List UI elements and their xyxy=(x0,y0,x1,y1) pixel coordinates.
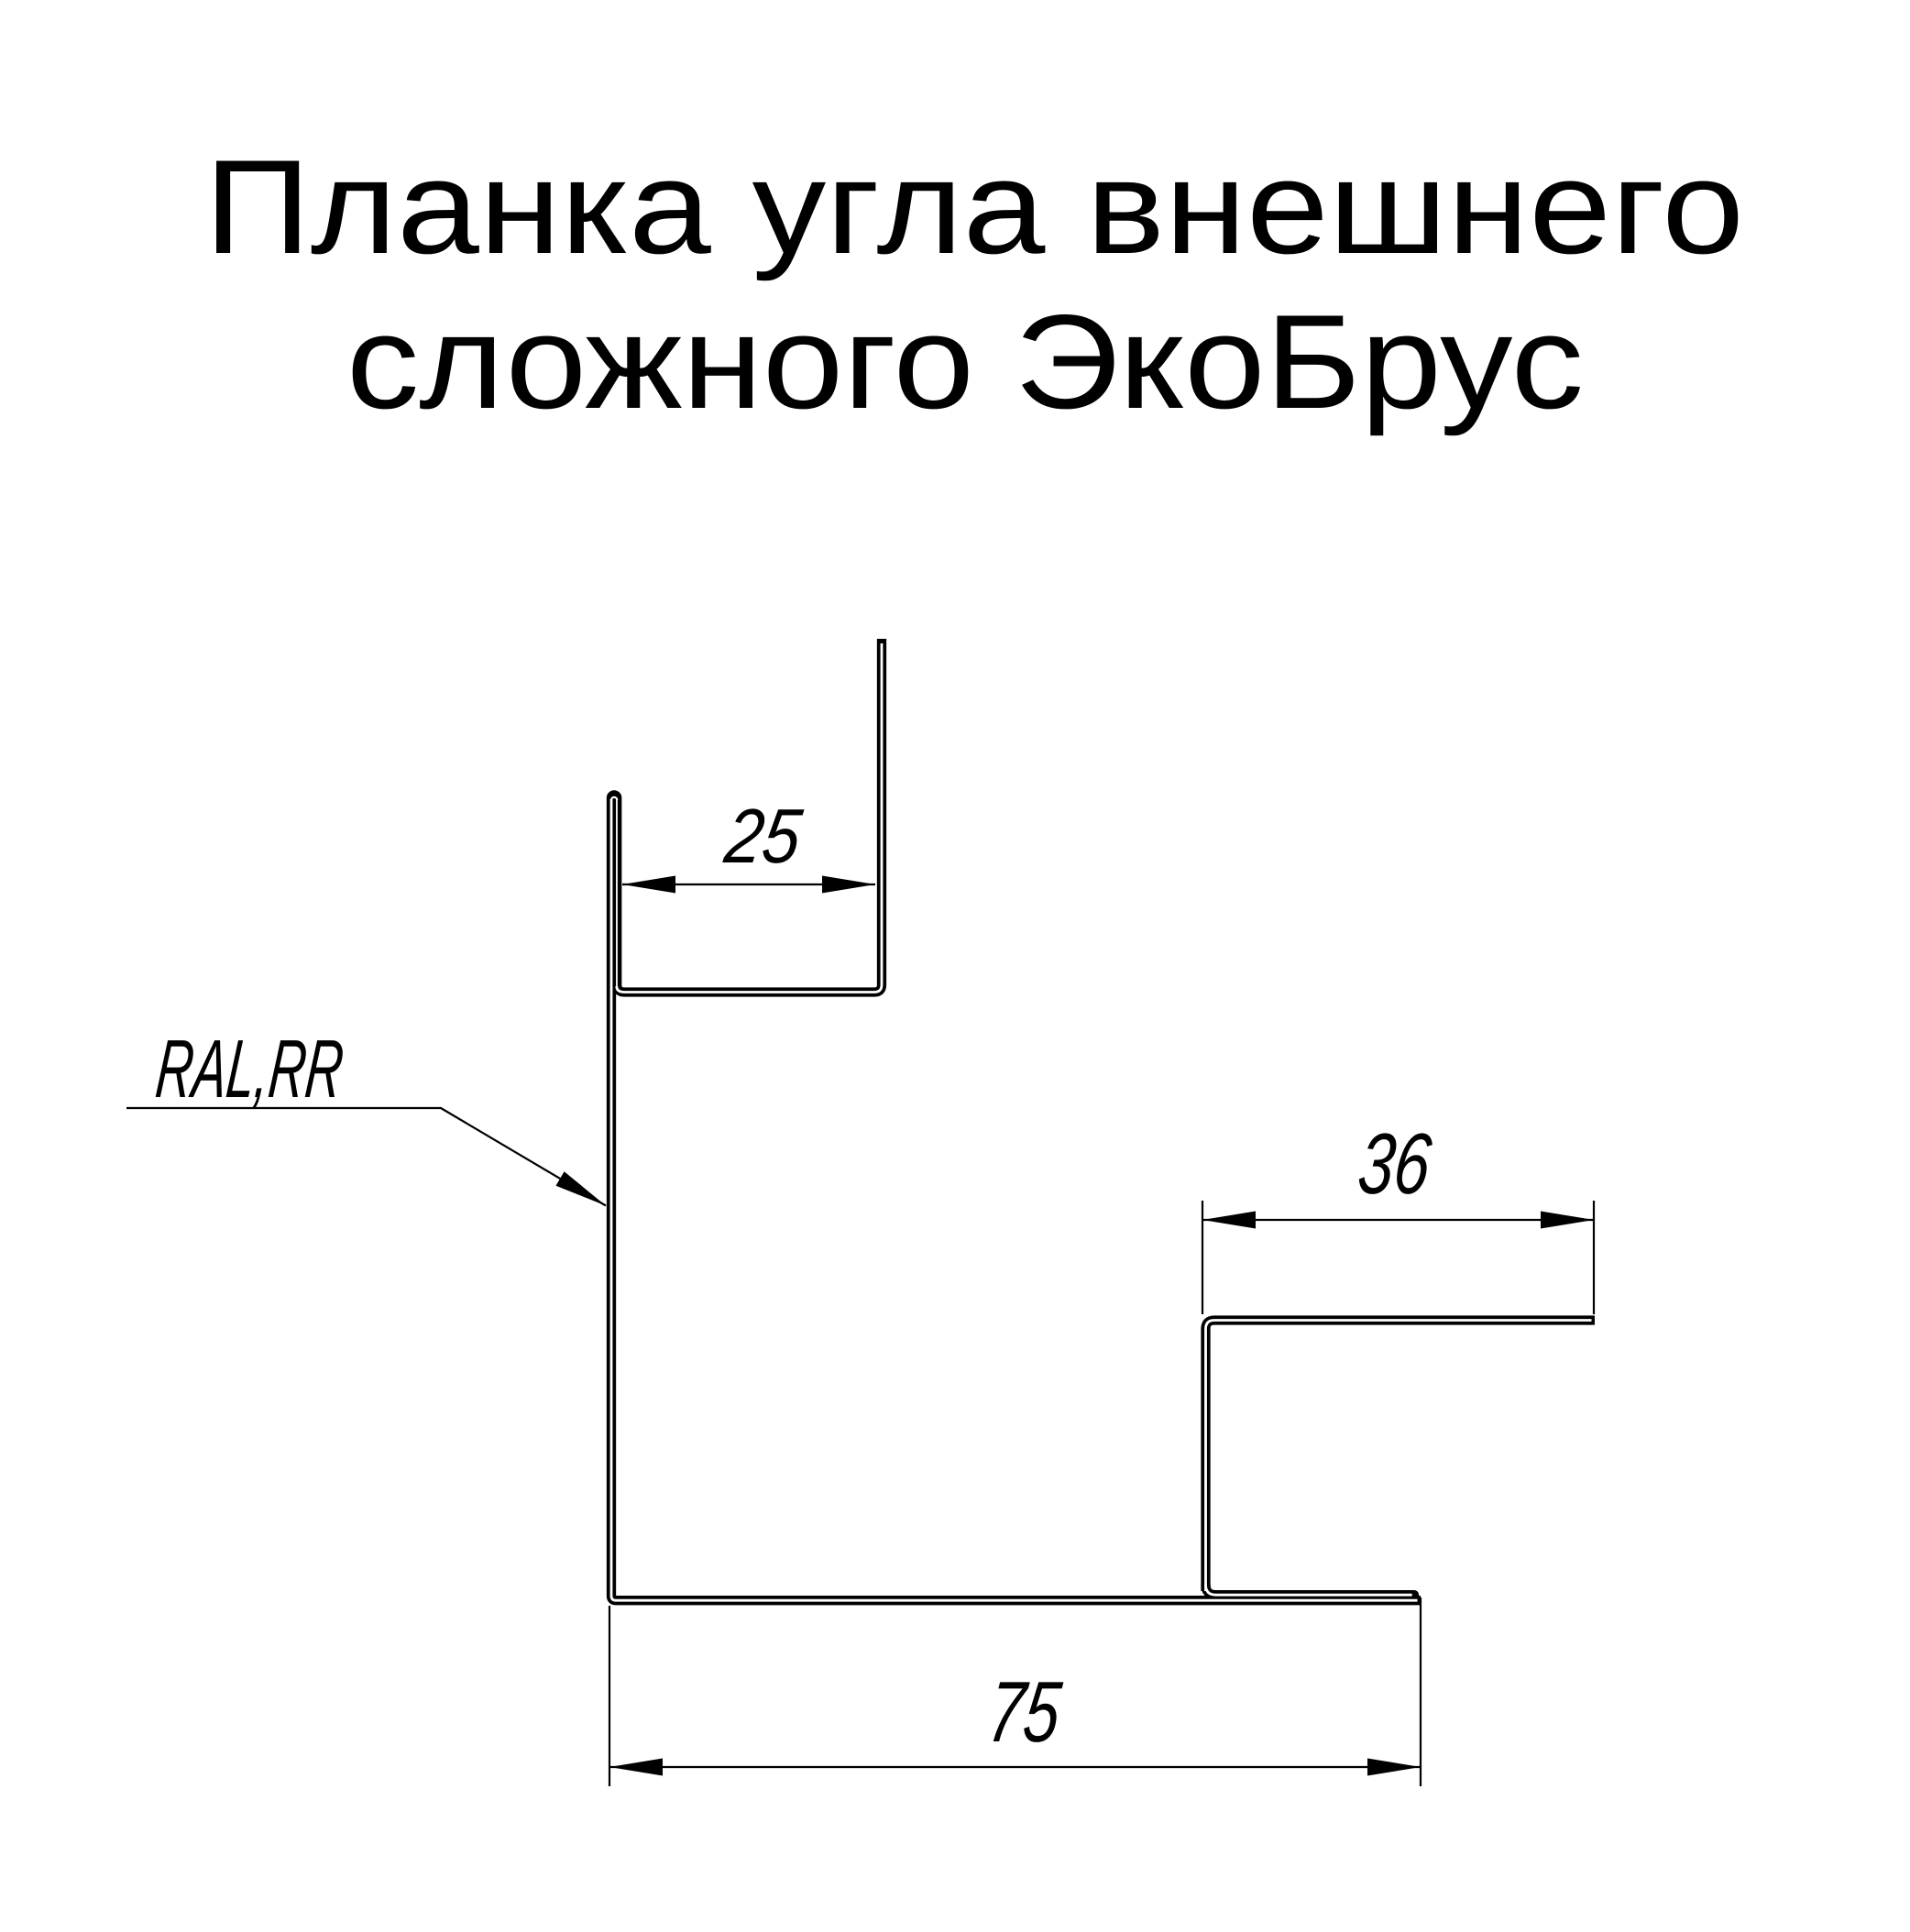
svg-text:75: 75 xyxy=(983,1663,1066,1760)
svg-text:Планка угла внешнего: Планка угла внешнего xyxy=(204,132,1744,281)
svg-text:36: 36 xyxy=(1354,1115,1436,1212)
svg-text:сложного ЭкоБрус: сложного ЭкоБрус xyxy=(346,287,1584,436)
svg-text:RAL,RR: RAL,RR xyxy=(152,1022,347,1114)
svg-text:25: 25 xyxy=(719,793,807,879)
